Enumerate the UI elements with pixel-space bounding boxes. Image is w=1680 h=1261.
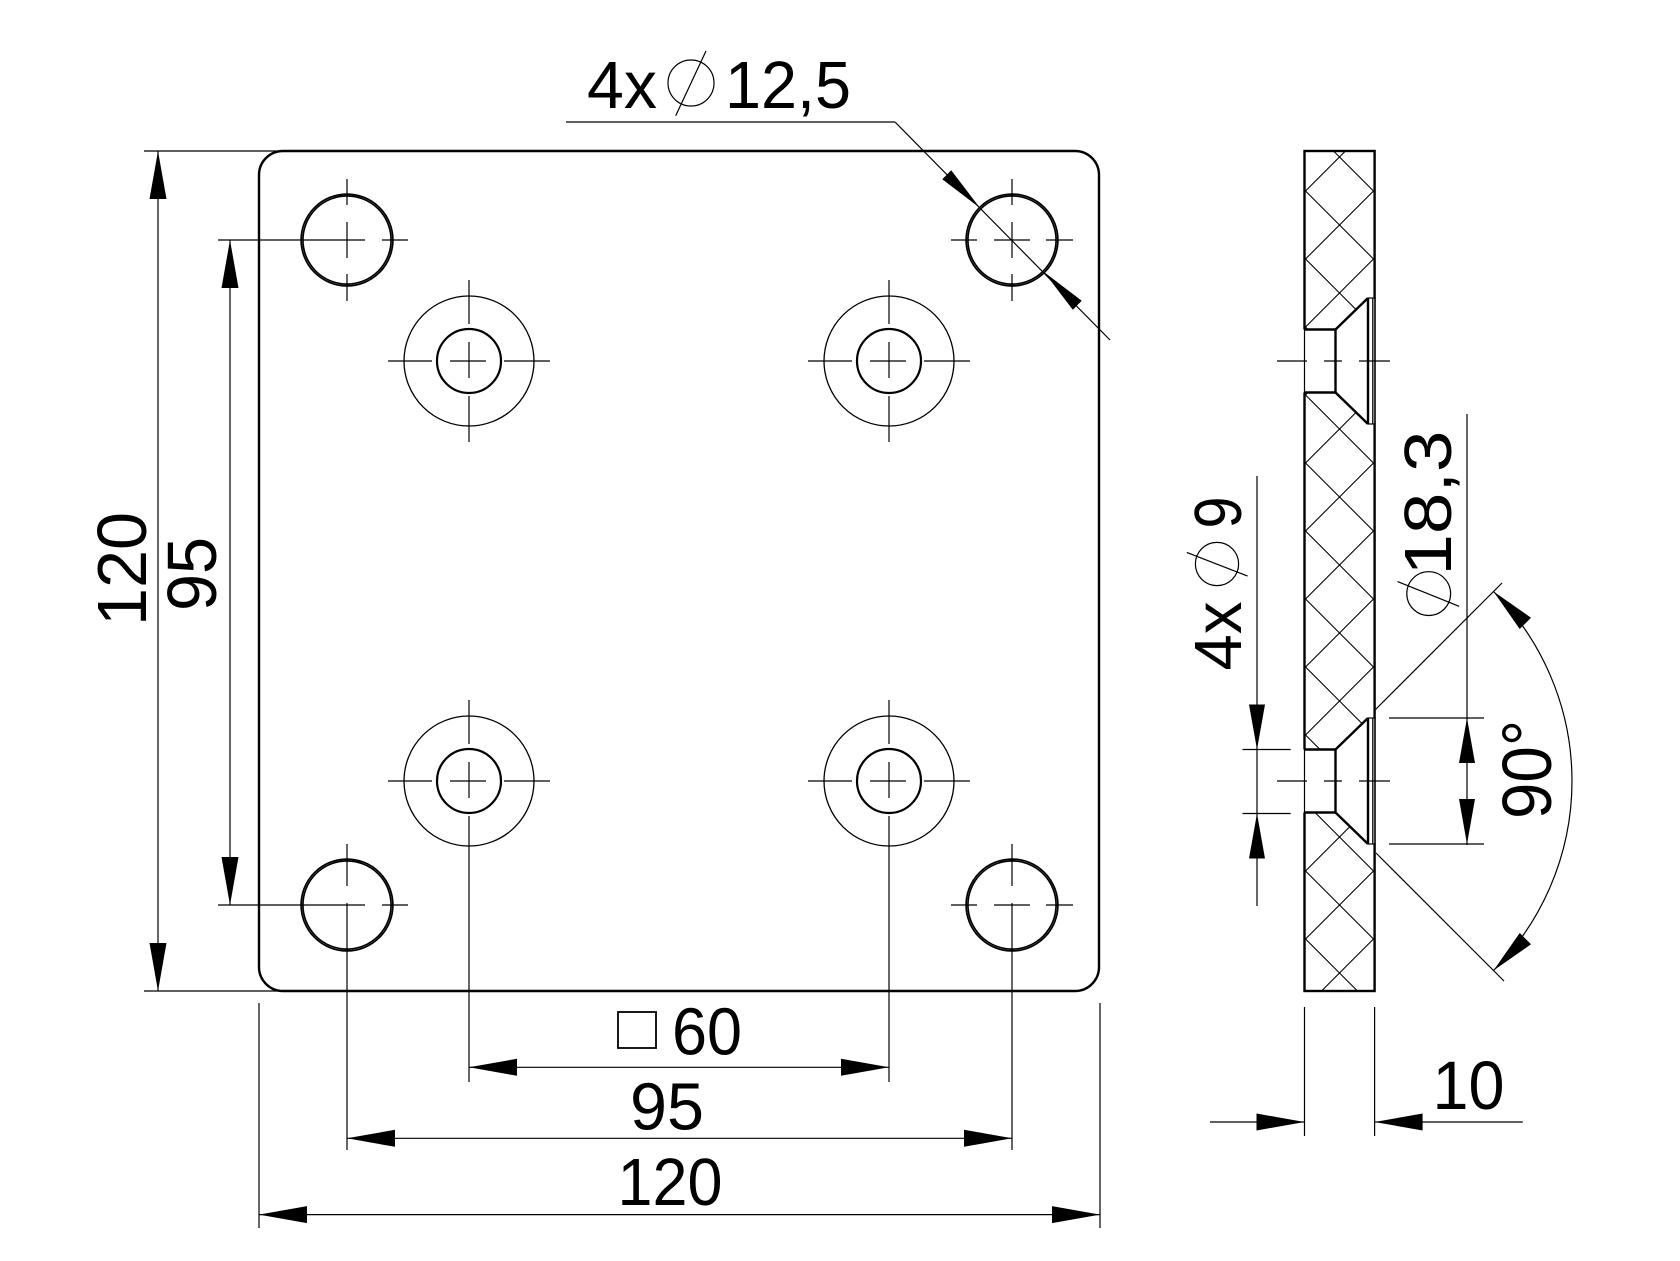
- svg-text:90°: 90°: [1488, 720, 1566, 819]
- svg-text:60: 60: [672, 995, 742, 1070]
- svg-text:120: 120: [618, 1145, 723, 1220]
- svg-text:95: 95: [630, 1070, 704, 1145]
- svg-text:9: 9: [1181, 497, 1256, 529]
- svg-text:120: 120: [83, 512, 161, 626]
- svg-text:10: 10: [1433, 1047, 1505, 1124]
- svg-text:18,3: 18,3: [1391, 431, 1466, 576]
- svg-text:4x: 4x: [587, 48, 657, 123]
- svg-text:12,5: 12,5: [725, 48, 851, 123]
- svg-text:95: 95: [153, 537, 231, 611]
- svg-text:4x: 4x: [1181, 602, 1256, 671]
